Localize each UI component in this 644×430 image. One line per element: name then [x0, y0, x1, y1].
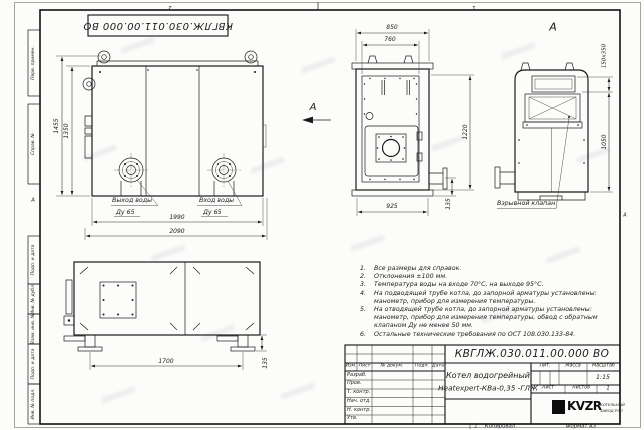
lit-label: Лит. — [539, 365, 550, 370]
stamp-podp-data-1: Подп. и дата — [32, 245, 37, 276]
product-name-line1: Котел водогрейный — [446, 372, 530, 380]
sheet-label: Лист — [542, 387, 554, 392]
product-name-line2: Heatexpert-КВа-0,35 -ГЛЖ — [438, 384, 538, 391]
dim-1220: 1220 — [463, 124, 469, 139]
dim-1350: 1350 — [64, 123, 70, 138]
sheets-label: Листов — [572, 387, 590, 392]
back-view-linework — [495, 63, 613, 209]
dim-1050: 1050 — [602, 134, 608, 149]
inlet-label: Вход воды — [199, 198, 234, 204]
note-text: манометр, прибор для измерения температу… — [374, 314, 598, 321]
dim-925: 925 — [386, 204, 397, 210]
top-doc-number: КВГЛЖ.030.011.00.000 ВО — [83, 20, 233, 30]
note-line: 2.Отклонения ±100 мм. — [360, 274, 447, 280]
dim-135-side: 135 — [446, 198, 452, 209]
dim-135-bottom: 135 — [263, 357, 269, 368]
copy-number: 1 — [474, 425, 477, 430]
note-line: 4.На подводящей трубе котла, до запорной… — [360, 291, 597, 297]
scale-value: 1:15 — [596, 375, 610, 381]
row-utv: Утв. — [347, 416, 358, 421]
company-line1: КОТЕЛЬНЫЙ — [600, 402, 625, 408]
outlet-dn-label: Ду 65 — [116, 210, 135, 216]
outlet-label: Выход воды — [112, 198, 152, 204]
stamp-sprav-no: Справ. № — [32, 133, 37, 155]
side-view-linework — [352, 29, 474, 216]
stamp-vzam-inv: Взам. инв. № — [32, 314, 37, 345]
note-text: Отклонения ±100 мм. — [374, 273, 447, 280]
note-text: Температура воды на входе 70°С, на выход… — [374, 281, 544, 288]
note-text: На отводящей трубе котла, до запорной ар… — [374, 306, 592, 313]
col-podp: Подп. — [415, 365, 429, 370]
note-text: Остальные технические требования по ОСТ … — [374, 331, 575, 338]
note-number: 1. — [360, 266, 374, 272]
format-label: Формат А3 — [566, 424, 596, 429]
copied-label: Копировал — [485, 424, 515, 429]
dim-1455: 1455 — [54, 118, 60, 133]
fold-mark-right: А — [623, 214, 626, 219]
note-line: манометр, прибор для измерения температу… — [360, 299, 535, 305]
explosion-valve-callout: Взрывной клапан — [497, 201, 555, 207]
kvzr-logo-text: KVZR — [567, 399, 602, 413]
company-line2: ЗАВОД РЭП — [600, 408, 625, 414]
doc-number: КВГЛЖ.030.011.00.000 ВО — [455, 349, 610, 360]
note-line: 5.На отводящей трубе котла, до запорной … — [360, 307, 592, 313]
dim-1700: 1700 — [158, 359, 173, 365]
dim-2090: 2090 — [169, 229, 184, 235]
col-list: Лист — [359, 365, 371, 370]
back-view-label: А — [549, 22, 557, 33]
view-arrow-label: А — [310, 103, 317, 113]
stamp-inv-dubl: Инв. № дубл. — [32, 284, 37, 315]
note-number: 6. — [360, 332, 374, 338]
mass-label: Масса — [565, 365, 580, 370]
note-number: 2. — [360, 274, 374, 280]
scale-label: Масштаб — [592, 365, 615, 370]
col-doc: № докум. — [381, 365, 404, 370]
fold-mark-left: А — [31, 198, 35, 204]
col-data: Дата — [432, 365, 444, 370]
stamp-podp-data-2: Подп. и дата — [32, 349, 37, 380]
note-number: 3. — [360, 282, 374, 288]
row-nachotd: Нач. отд. — [347, 399, 371, 404]
note-line: 1.Все размеры для справок. — [360, 266, 461, 272]
note-text: клапаном Ду не менее 50 мм. — [374, 322, 473, 329]
sheets-value: 1 — [606, 386, 609, 391]
note-line: манометр, прибор для измерения температу… — [360, 315, 598, 321]
row-prov: Пров. — [347, 381, 362, 386]
kvzr-logo-mark — [552, 400, 565, 414]
stamp-perv-primen: Перв. примен. — [32, 46, 37, 80]
company-name: КОТЕЛЬНЫЙ ЗАВОД РЭП — [600, 402, 625, 413]
note-text: манометр, прибор для измерения температу… — [374, 298, 535, 305]
bottom-view-linework — [64, 262, 267, 370]
zone-number-right: 1 — [472, 3, 476, 9]
stamp-inv-podl: Инв. № подл. — [32, 388, 37, 419]
inlet-dn-label: Ду 65 — [203, 210, 222, 216]
note-text: На подводящей трубе котла, до запорной а… — [374, 290, 597, 297]
col-izm: Изм. — [346, 365, 357, 370]
front-view-linework — [56, 51, 331, 240]
row-tkontr: Т. контр. — [347, 390, 370, 395]
drawing-sheet: КВГЛЖ.030.011.00.000 ВО 2 1 А А Перв. пр… — [0, 0, 644, 430]
dim-850: 850 — [386, 25, 397, 31]
note-line: 3.Температура воды на входе 70°С, на вых… — [360, 282, 544, 288]
row-razrab: Разраб. — [347, 373, 367, 378]
note-number: 5. — [360, 307, 374, 313]
note-line: 6.Остальные технические требования по ОС… — [360, 332, 575, 338]
dim-1990: 1990 — [169, 215, 184, 221]
row-nkontr: Н. контр. — [347, 408, 371, 413]
dim-760: 760 — [384, 37, 395, 43]
zone-number-left: 2 — [168, 3, 172, 9]
note-number: 4. — [360, 291, 374, 297]
note-text: Все размеры для справок. — [374, 265, 461, 272]
note-line: клапаном Ду не менее 50 мм. — [360, 323, 473, 329]
dim-150x350: 150х350 — [602, 44, 608, 68]
